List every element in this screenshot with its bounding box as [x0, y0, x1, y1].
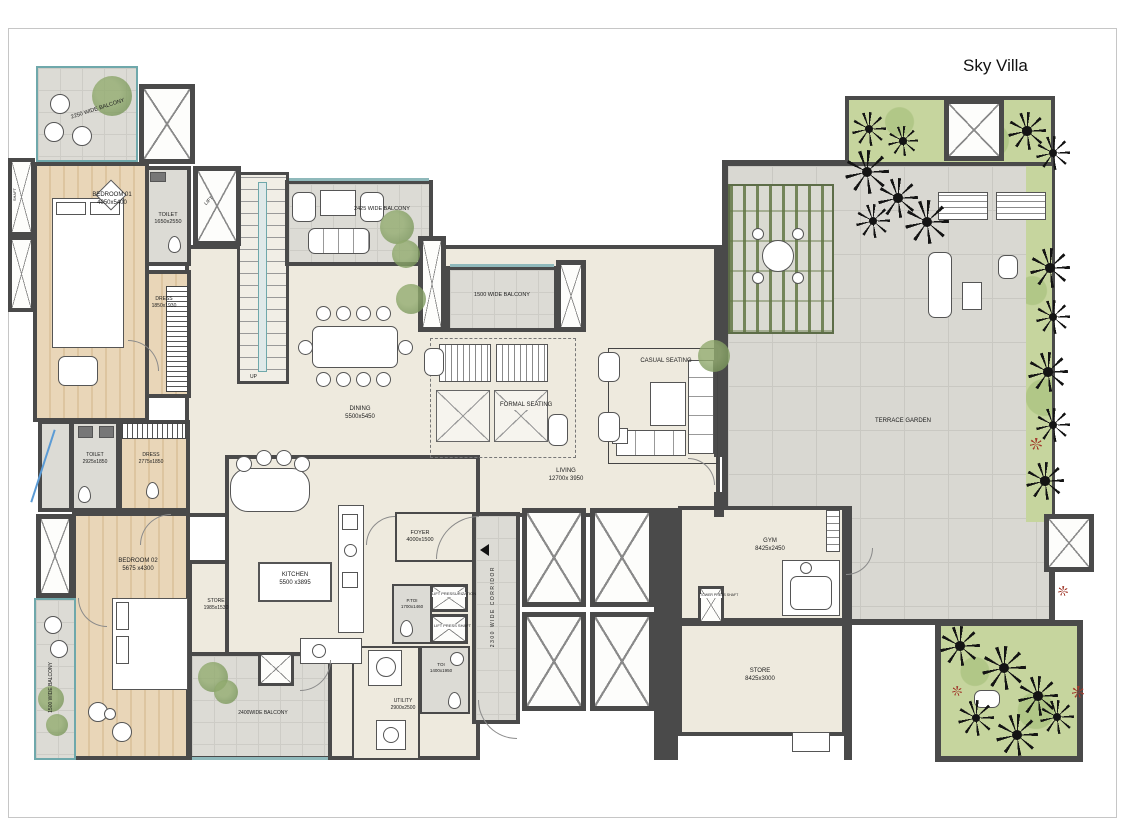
plant-icon — [392, 240, 420, 268]
gym-label: GYM 8425x2450 — [742, 538, 798, 554]
palm-tree-icon — [996, 714, 1038, 756]
formal-seating-label: FORMAL SEATING — [500, 402, 544, 410]
flower-icon — [1058, 586, 1068, 596]
room-dims: 12700x 3950 — [534, 476, 598, 484]
window-glazing — [450, 264, 554, 267]
side-table — [104, 708, 116, 720]
palm-tree-icon — [1040, 700, 1074, 734]
toilet-02-label: TOILET 2925x1850 — [72, 452, 118, 465]
coffee-table — [650, 382, 686, 426]
sofa — [439, 344, 491, 382]
dining-chair — [316, 372, 331, 387]
dining-label: DINING 5500x5450 — [330, 406, 390, 422]
plan-title: Sky Villa — [963, 56, 1028, 76]
flower-icon — [1030, 438, 1042, 450]
lamp-table — [548, 414, 568, 446]
sofa — [308, 228, 370, 254]
terrace-label: TERRACE GARDEN — [858, 418, 948, 426]
hob — [342, 514, 358, 530]
shaft-label: SHAFT — [12, 188, 17, 201]
sink — [312, 644, 326, 658]
lift-press-shaft — [430, 614, 468, 644]
sofa — [688, 360, 714, 454]
flower-icon — [1072, 686, 1084, 698]
window-glazing — [192, 757, 328, 760]
palm-tree-icon — [1036, 300, 1070, 334]
palm-tree-icon — [888, 126, 918, 156]
window-glazing — [289, 178, 429, 181]
lift-shaft — [590, 612, 654, 711]
room-name: DINING — [330, 406, 390, 414]
pergola-chair — [752, 228, 764, 240]
room-dims: 1400x1950 — [422, 668, 460, 674]
bar-stool — [256, 450, 272, 466]
washer-drum — [376, 657, 396, 677]
palm-tree-icon — [1036, 136, 1070, 170]
palm-tree-icon — [852, 112, 886, 146]
living-label: LIVING 12700x 3950 — [534, 468, 598, 484]
armchair — [598, 352, 620, 382]
toilet-icon — [78, 486, 91, 503]
balcony-chair — [50, 94, 70, 114]
palm-tree-icon — [958, 700, 994, 736]
lift-shaft — [193, 166, 241, 246]
dining-table — [312, 326, 398, 368]
plant-icon — [698, 340, 730, 372]
toilet-icon — [168, 236, 181, 253]
plant-icon — [380, 210, 414, 244]
wall — [714, 492, 724, 517]
side-table — [962, 282, 982, 310]
bar-stool — [294, 456, 310, 472]
stair-rail — [258, 182, 267, 372]
plant-icon — [214, 680, 238, 704]
palm-tree-icon — [1036, 408, 1070, 442]
palm-tree-icon — [982, 646, 1026, 690]
lift-shaft — [139, 84, 195, 164]
palm-tree-icon — [940, 626, 980, 666]
pergola-table — [762, 240, 794, 272]
foyer-label: FOYER 4000x1500 — [398, 530, 442, 544]
toilet-icon — [400, 620, 413, 637]
palm-tree-icon — [1028, 352, 1068, 392]
room-dims: 5500 x3895 — [264, 580, 326, 588]
wall — [844, 506, 852, 760]
room-dims: 1700x1460 — [393, 604, 431, 610]
room-name: GYM — [742, 538, 798, 546]
floor-plan-page: Sky Villa TERRACE GARDEN — [0, 0, 1126, 826]
corridor-label: 2300 WIDE CORRIDOR — [490, 566, 497, 647]
bedroom-01-label: BEDROOM 01 4050x5400 — [82, 192, 142, 208]
palm-tree-icon — [1026, 462, 1064, 500]
treadmill-wheel — [800, 562, 812, 574]
basin — [150, 172, 166, 182]
bar-stool — [236, 456, 252, 472]
room-name: LIVING — [534, 468, 598, 476]
room-name: STORE — [730, 668, 790, 676]
wall — [654, 508, 678, 760]
lamp-table — [424, 348, 444, 376]
basin — [78, 426, 93, 438]
room-dims: 2775x1850 — [126, 459, 176, 466]
armchair — [292, 192, 316, 222]
armchair — [598, 412, 620, 442]
balcony-2400-label: 2400WIDE BALCONY — [228, 710, 298, 717]
lift-press-shaft-label: LIFT PRESS SHAFT — [434, 624, 464, 629]
dining-chair — [336, 306, 351, 321]
palm-tree-icon — [856, 204, 890, 238]
room-dims: 1650x2550 — [148, 219, 188, 226]
pergola-chair — [752, 272, 764, 284]
pillow — [116, 602, 129, 630]
balcony-chair — [72, 126, 92, 146]
room-dims: 1985x1530 — [194, 605, 238, 612]
room-name: BEDROOM 02 — [108, 558, 168, 566]
rug — [436, 390, 490, 442]
bedroom-sofa — [58, 356, 98, 386]
dining-chair — [316, 306, 331, 321]
lift-shaft — [418, 236, 446, 332]
lift-shaft — [36, 514, 74, 598]
lift-shaft-terrace-bottom — [1044, 514, 1094, 572]
tower-press-shaft — [698, 586, 724, 624]
sofa — [496, 344, 548, 382]
toilet-icon — [146, 482, 159, 499]
dining-chair — [376, 372, 391, 387]
basin — [99, 426, 114, 438]
balcony-2425-label: 2425 WIDE BALCONY — [344, 206, 420, 213]
bed — [52, 198, 124, 348]
toilet-icon — [448, 692, 461, 709]
dining-chair — [398, 340, 413, 355]
lift-pressurization-shaft — [430, 584, 468, 612]
sink — [344, 544, 357, 557]
palm-tree-icon — [1030, 248, 1070, 288]
up-label: UP — [250, 374, 257, 381]
dining-chair — [356, 306, 371, 321]
dress-01-label: DRESS 1850x1930 — [144, 296, 184, 309]
dining-chair — [298, 340, 313, 355]
room-dims: 5675 x4300 — [108, 566, 168, 574]
balcony-chair — [44, 616, 62, 634]
washer-drum — [383, 727, 399, 743]
toilet-01-label: TOILET 1650x2550 — [148, 212, 188, 226]
pillow — [116, 636, 129, 664]
room-name: KITCHEN — [264, 572, 326, 580]
room-dims: 2925x1850 — [72, 459, 118, 466]
rug — [494, 390, 548, 442]
swing-seat — [996, 192, 1046, 220]
plant-icon — [396, 284, 426, 314]
room-dims: 1850x1930 — [144, 303, 184, 310]
pergola-chair — [792, 272, 804, 284]
dining-chair — [356, 372, 371, 387]
gym-equipment — [826, 510, 840, 552]
p-toi-label: P.TOI 1700x1460 — [393, 598, 431, 610]
room-name: BEDROOM 01 — [82, 192, 142, 200]
room-dims: 4050x5400 — [82, 200, 142, 208]
room-dims: 2900x2500 — [382, 705, 424, 712]
pergola-chair — [792, 228, 804, 240]
room-name: FOYER — [398, 530, 442, 537]
bar-stool — [276, 450, 292, 466]
bedroom-02-label: BEDROOM 02 5675 x4300 — [108, 558, 168, 574]
utility-label: UTILITY 2900x2500 — [382, 698, 424, 711]
room-dims: 8425x3000 — [730, 676, 790, 684]
balcony-1500-left-label: 1500 WIDE BALCONY — [48, 662, 55, 713]
wardrobe — [122, 423, 186, 439]
room-dims: 4000x1500 — [398, 537, 442, 544]
lift-shaft-terrace — [944, 99, 1004, 161]
store-01-label: STORE 1985x1530 — [194, 598, 238, 611]
room-dims: 8425x2450 — [742, 546, 798, 554]
balcony-chair — [50, 640, 68, 658]
lift-shaft — [590, 508, 654, 607]
shaft — [258, 652, 294, 686]
lounge-chair — [928, 252, 952, 318]
balcony-1500-top-label: 1500 WIDE BALCONY — [462, 292, 542, 299]
kitchen-island — [230, 468, 310, 512]
appliance — [342, 572, 358, 588]
lift-shaft — [556, 260, 586, 332]
lift-shaft — [522, 612, 586, 711]
dress-02-label: DRESS 2775x1850 — [126, 452, 176, 465]
room-name: TOILET — [148, 212, 188, 219]
lift-shaft — [522, 508, 586, 607]
balcony-chair — [112, 722, 132, 742]
lift-pressurization-label: LIFT PRESSURIZATION — [432, 592, 466, 597]
casual-seating-label: CASUAL SEATING — [628, 358, 704, 366]
flower-icon — [952, 686, 962, 696]
dining-chair — [376, 306, 391, 321]
toi-label: TOI 1400x1950 — [422, 662, 460, 674]
p-toi — [392, 584, 432, 644]
plant-icon — [46, 714, 68, 736]
palm-tree-icon — [905, 200, 949, 244]
dining-chair — [336, 372, 351, 387]
door-swing-marker — [480, 544, 489, 556]
tower-press-shaft-label: TOWER PRESS SHAFT — [700, 594, 722, 598]
shaft — [8, 236, 35, 312]
terrace-chair — [998, 255, 1018, 279]
store-02-label: STORE 8425x3000 — [730, 668, 790, 684]
store-niche — [792, 732, 830, 752]
treadmill-belt — [790, 576, 832, 610]
room-dims: 5500x5450 — [330, 414, 390, 422]
kitchen-label: KITCHEN 5500 x3895 — [264, 572, 326, 588]
